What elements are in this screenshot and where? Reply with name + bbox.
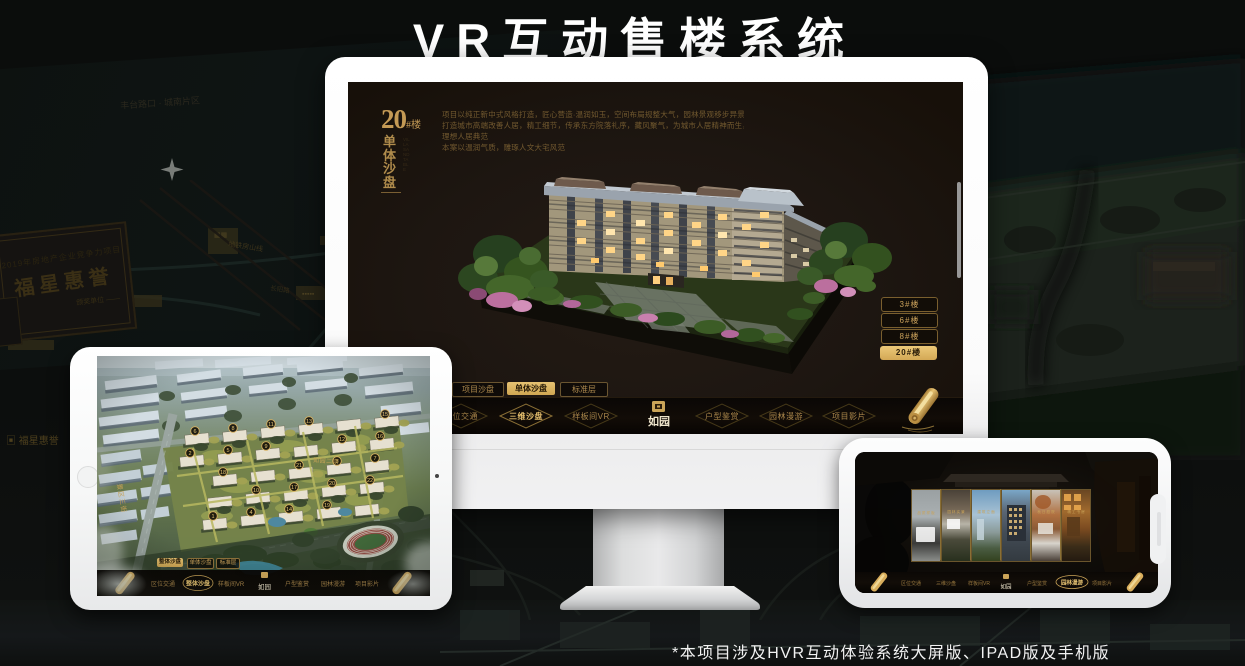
svg-text:项目影片: 项目影片 (1092, 580, 1112, 587)
svg-text:园林漫游: 园林漫游 (769, 411, 803, 421)
svg-text:建 筑 立 面: 建 筑 立 面 (977, 509, 995, 514)
svg-text:三维沙盘: 三维沙盘 (936, 580, 956, 587)
svg-text:户型鉴赏: 户型鉴赏 (1027, 580, 1047, 587)
svg-text:区位交通: 区位交通 (901, 580, 921, 587)
svg-text:样板间VR: 样板间VR (572, 411, 610, 421)
svg-text:品 质 样 板: 品 质 样 板 (917, 510, 935, 515)
svg-text:园 林 实 景: 园 林 实 景 (947, 509, 965, 514)
svg-text:如园: 如园 (648, 414, 670, 428)
svg-text:园林漫游: 园林漫游 (1061, 579, 1084, 587)
svg-text:三维沙盘: 三维沙盘 (509, 411, 543, 421)
svg-text:地铁房山线: 地铁房山线 (228, 239, 264, 253)
svg-text:样板间VR: 样板间VR (968, 580, 990, 587)
svg-text:如园: 如园 (1000, 583, 1012, 591)
svg-text:户型鉴赏: 户型鉴赏 (705, 411, 739, 421)
svg-text:项目影片: 项目影片 (832, 411, 866, 421)
svg-text:秋 日 庭 院: 秋 日 庭 院 (1037, 509, 1055, 514)
